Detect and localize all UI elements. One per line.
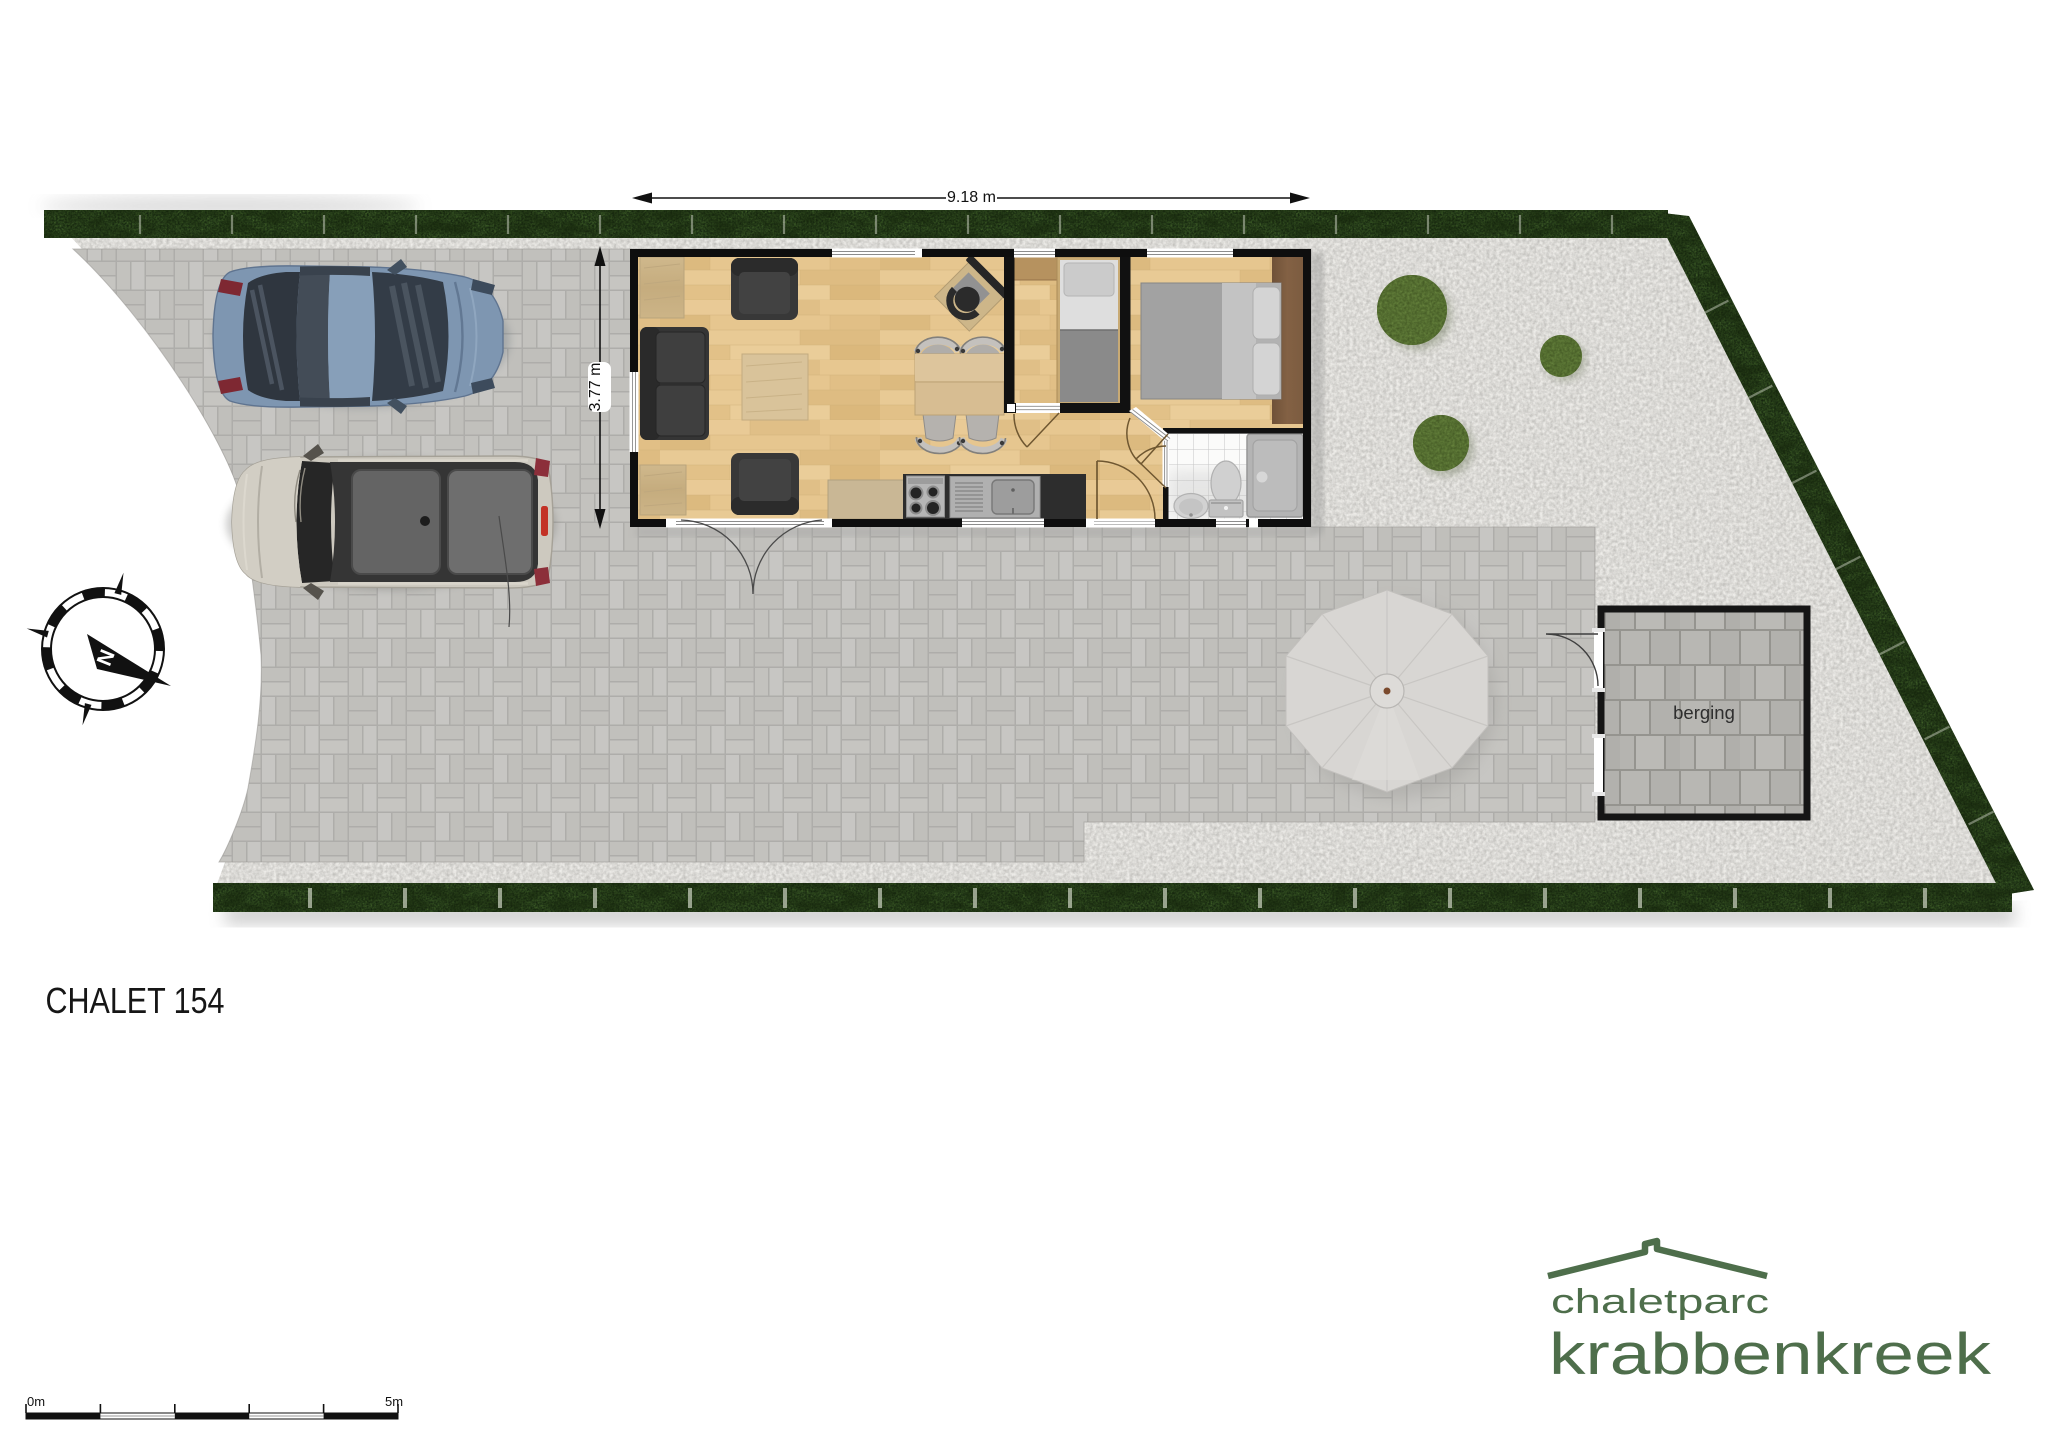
svg-text:9.18 m: 9.18 m	[947, 189, 996, 206]
svg-text:krabbenkreek: krabbenkreek	[1549, 1322, 1992, 1387]
svg-text:berging: berging	[1673, 702, 1735, 723]
svg-text:CHALET 154: CHALET 154	[46, 980, 225, 1021]
svg-text:chaletparc: chaletparc	[1551, 1283, 1769, 1321]
svg-text:3.77 m: 3.77 m	[587, 363, 604, 412]
svg-text:0m: 0m	[27, 1394, 45, 1409]
svg-text:5m: 5m	[385, 1394, 403, 1409]
